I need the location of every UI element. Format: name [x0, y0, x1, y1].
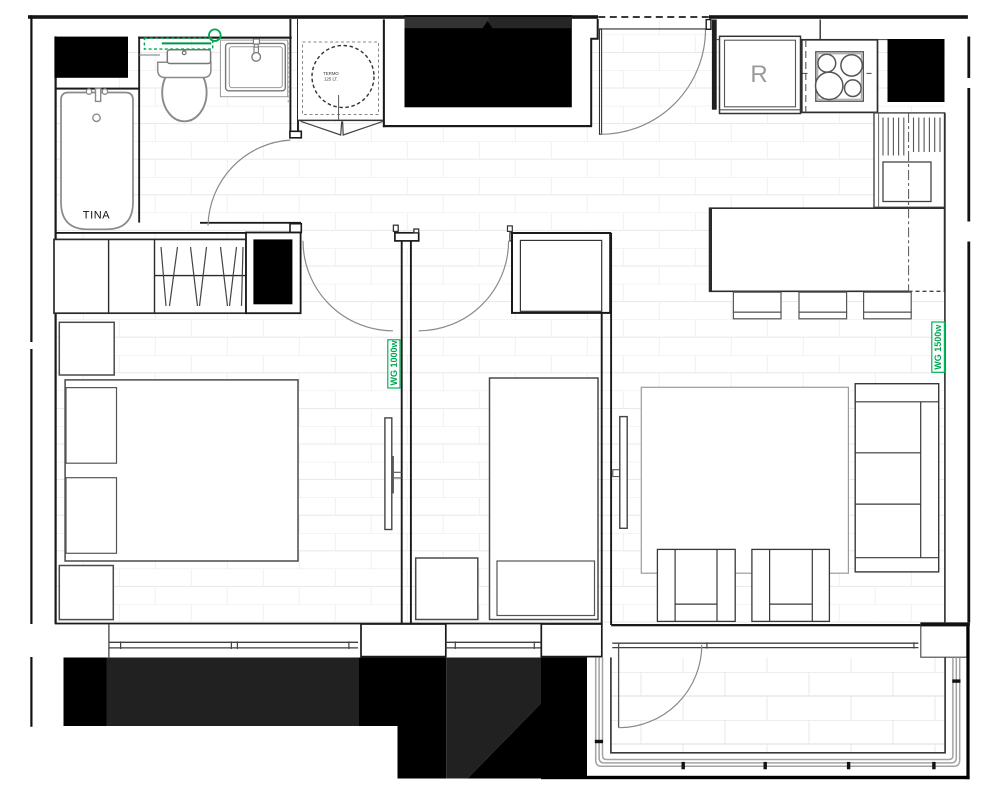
svg-text:TERMO: TERMO	[323, 71, 339, 76]
svg-text:WG 1500w: WG 1500w	[933, 324, 943, 370]
svg-text:WG 1000w: WG 1000w	[389, 339, 399, 385]
svg-text:TINA: TINA	[83, 210, 111, 222]
svg-text:R: R	[750, 61, 767, 88]
svg-text:125 LT.: 125 LT.	[324, 77, 338, 82]
